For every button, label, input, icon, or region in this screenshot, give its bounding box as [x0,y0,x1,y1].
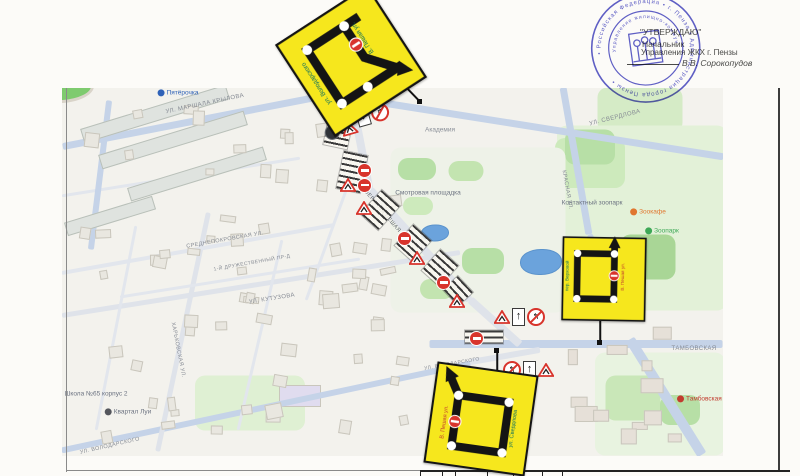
poi-icon [105,408,112,415]
poi-label: Контактный зоопарк [562,200,623,207]
building [280,343,298,358]
poi-label: Пятёрочка [158,89,199,96]
poi-label: Школа №65 корпус 2 [64,391,127,398]
building [568,349,578,365]
building [166,397,176,412]
poi-label: Зоокафе [630,208,666,215]
no-entry-icon [470,332,483,345]
building [108,346,124,360]
no-entry-icon [437,276,450,289]
building [161,420,175,429]
building [183,315,197,328]
poi-text: Смотровая площадка [395,190,461,197]
poi-icon [645,227,652,234]
roadworks-icon [449,294,465,308]
traffic-sign-cluster [340,178,371,192]
no-left-turn-icon: ↰ [527,308,545,326]
park-area [462,248,504,274]
poi-label: Зоопарк [645,227,679,234]
building [272,374,288,388]
building [352,269,366,280]
poi-text: Контактный зоопарк [562,200,623,207]
building [241,404,253,416]
detour-route-sign-s2: пер. ВерховойВ. Пешая ул. [561,233,647,324]
building [95,229,111,239]
building [396,355,411,366]
roadworks-icon [356,201,372,215]
building [130,360,144,374]
building [641,378,664,394]
building [206,169,215,176]
building [644,410,662,425]
no-entry-icon [358,164,371,177]
building [211,426,224,435]
traffic-sign-cluster [409,251,425,265]
building [381,238,392,252]
building [371,320,386,332]
approval-stamp: • Российская Федерация • г. Пенза • Адми… [580,0,711,116]
building [370,283,387,297]
leader-marker [597,340,602,345]
building [260,164,272,178]
building [338,419,352,435]
building [99,270,109,281]
one-way-up-icon: ↑ [512,308,525,326]
traffic-sign-cluster [470,332,483,345]
poi-text: Зоопарк [654,228,679,235]
building [124,150,134,161]
building [352,241,367,254]
building [329,243,343,258]
building [621,429,637,444]
building [390,376,401,386]
road [305,179,352,300]
poi-label: Тамбовская застава [677,395,723,402]
no-entry-icon [398,232,411,245]
building [341,282,358,293]
park-area [449,161,484,181]
detour-sign-street-label: В. Пешая ул. [620,263,625,291]
poi-icon [677,395,684,402]
traffic-sign-cluster [356,201,372,215]
roadworks-icon [494,310,510,324]
roadworks-icon [340,178,356,192]
poi-text: Квартал Луи [114,409,152,416]
building [193,110,206,125]
traffic-sign-cluster [449,294,465,308]
street-label: УЛ. КУТУЗОВА [249,292,296,305]
building [607,345,628,355]
scanned-detour-scheme-document: УЛ. МАРШАЛА КРЫЛОВАУЛ. СВЕРДЛОВАКРАСНАЯ … [0,0,800,476]
detour-route-sign-s3: В. Пешая ул.ул. Свердлова [423,361,538,476]
poi-label: Академия [425,127,455,134]
building [322,293,340,309]
roadworks-icon [409,251,425,265]
title-block [420,470,790,476]
poi-icon [630,208,637,215]
building [255,313,272,326]
building [185,326,196,337]
traffic-sign-cluster: ↑↰ [494,308,545,326]
leader-marker [494,348,499,353]
road [95,226,138,431]
poi-text: Школа №65 корпус 2 [64,391,127,398]
building [84,131,101,147]
building [354,354,363,365]
building [668,433,682,442]
poi-label: Квартал Луи [105,408,152,415]
building [307,268,317,283]
poi-text: Зоокафе [639,209,666,216]
poi-label: Смотровая площадка [395,190,461,197]
building [398,414,409,425]
building [642,360,653,371]
building [275,168,289,183]
traffic-sign-cluster [358,164,371,177]
street-label: ТАМБОВСКАЯ [672,346,717,352]
building [233,144,247,154]
building [220,214,237,223]
park-area [398,158,436,180]
no-entry-icon [358,179,371,192]
building [285,133,294,145]
building [158,249,170,259]
traffic-sign-cluster [437,276,450,289]
building [593,409,609,422]
roadworks-icon [538,363,554,377]
poi-text: Пятёрочка [167,90,199,97]
park-area [403,197,433,215]
detour-sign-street-label: пер. Верховой [564,260,571,291]
poi-text: Тамбовская застава [686,396,723,403]
building [653,327,671,340]
page-frame-left [66,88,67,472]
leader-marker [417,99,422,104]
building [78,227,90,240]
building [215,321,227,331]
poi-text: Академия [425,127,455,134]
page-frame-right [778,88,780,472]
stamp-emblem [629,30,663,66]
traffic-sign-cluster [398,232,411,245]
pond [520,249,562,275]
building [316,180,328,193]
poi-icon [158,89,165,96]
